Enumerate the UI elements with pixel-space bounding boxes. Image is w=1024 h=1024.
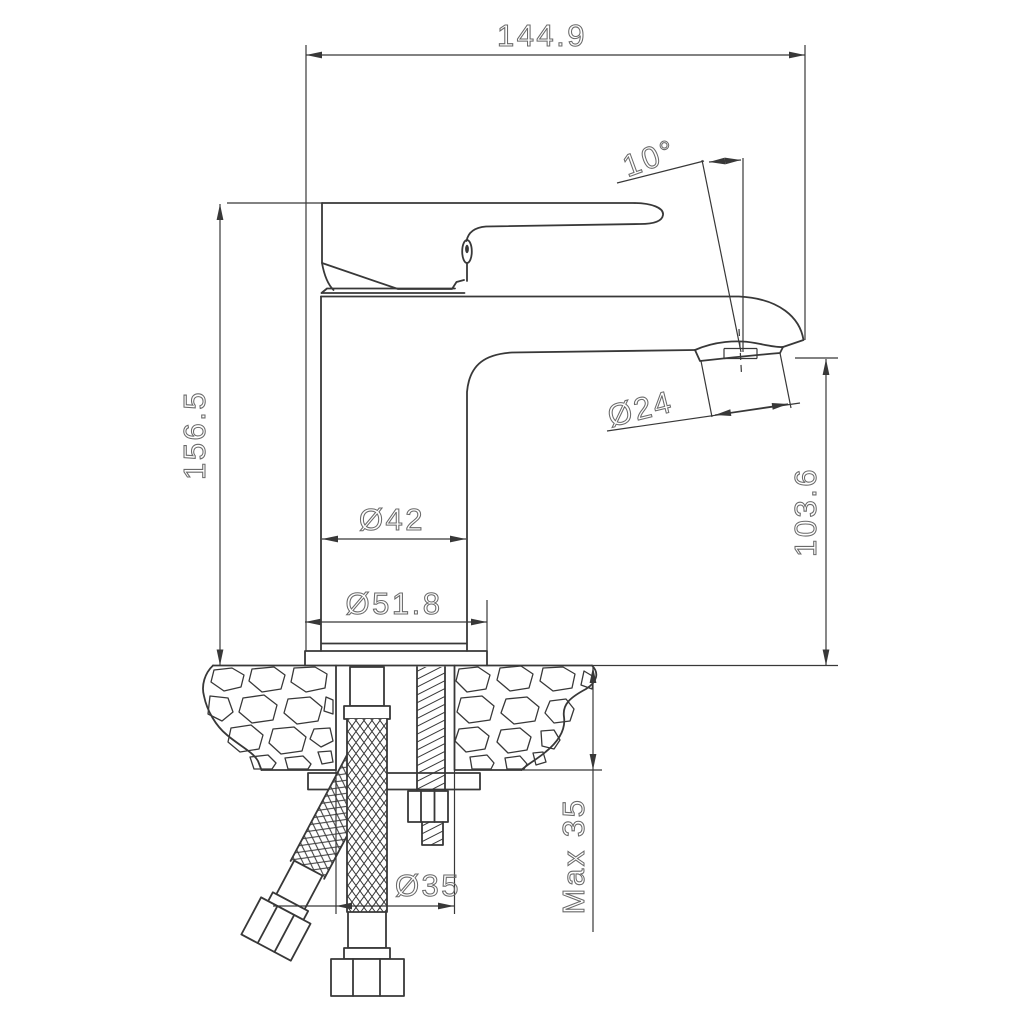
hose-ferrule (348, 912, 386, 948)
body-diameter-label: Ø42 (359, 502, 425, 537)
base-diameter-label: Ø51.8 (346, 586, 443, 621)
overall-height-label: 156.5 (177, 390, 212, 480)
base-flange (305, 644, 487, 666)
dim-max-thickness: Max 35 (521, 667, 602, 932)
stud-nut (408, 791, 448, 845)
max-thickness-label: Max 35 (556, 798, 591, 915)
aerator-diameter-label: Ø24 (604, 384, 677, 434)
dim-handle-angle: 10° (617, 132, 743, 352)
hole-diameter-label: Ø35 (395, 868, 461, 903)
hose-collar (344, 706, 390, 719)
dim-overall-height: 156.5 (177, 203, 322, 666)
handle-angle-label: 10° (618, 132, 681, 183)
counter-cross-section (203, 666, 596, 771)
dim-body-diameter: Ø42 (322, 502, 466, 539)
hose-hex-nut (331, 959, 404, 996)
dim-overall-width: 144.9 (306, 18, 805, 651)
dim-base-diameter: Ø51.8 (305, 586, 487, 651)
hose-collar (344, 948, 390, 959)
extension-lines (701, 353, 791, 417)
technical-drawing-canvas: 144.9 156.5 103.6 10° Ø24 Ø42 Ø51.8 Max … (0, 0, 1024, 1024)
handle-lever (322, 203, 663, 290)
faucet-dimension-drawing: 144.9 156.5 103.6 10° Ø24 Ø42 Ø51.8 Max … (0, 0, 1024, 1024)
dim-aerator-diameter: Ø24 (604, 353, 800, 434)
hose-ferrule (350, 667, 384, 706)
dimension-arrows (715, 404, 788, 415)
overall-width-label: 144.9 (497, 18, 587, 53)
handle-pivot (462, 240, 472, 263)
handle-base-flange (322, 289, 465, 294)
angle-reference-lines (702, 158, 743, 352)
pivot-slot (465, 245, 469, 253)
stone-hatch-pebbles (208, 666, 594, 769)
angle-arrows (709, 160, 741, 162)
hose-braid-texture (347, 719, 387, 912)
spout-height-label: 103.6 (788, 467, 823, 557)
